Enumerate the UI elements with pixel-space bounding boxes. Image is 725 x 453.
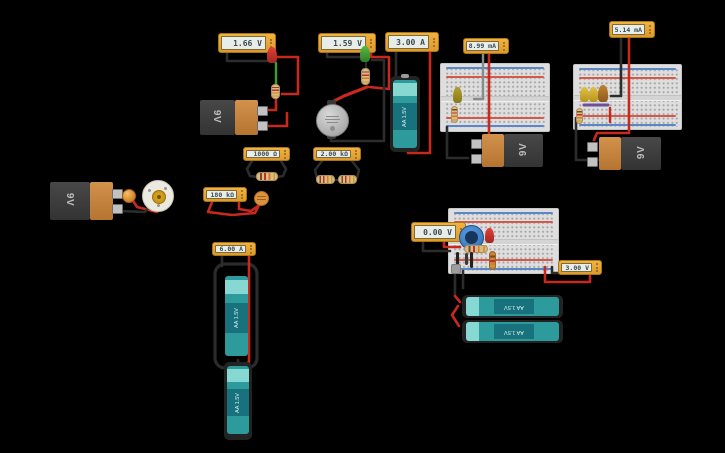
meter-display: 1.66 V <box>221 36 266 50</box>
green-led[interactable] <box>360 46 370 62</box>
battery-terminal[interactable] <box>112 204 123 214</box>
meter-reading: 1.66 V <box>233 39 262 48</box>
meter-display: 1000 Ω <box>246 150 280 158</box>
multimeter-current-1[interactable]: 3.00 A <box>385 32 439 52</box>
battery-aa-5[interactable]: AA 1.5V <box>462 320 563 343</box>
meter-display: 0.00 V <box>414 225 456 239</box>
multimeter-current-3[interactable]: 5.14 mA <box>609 21 655 38</box>
battery-terminal[interactable] <box>471 154 482 164</box>
jumper-pad[interactable] <box>451 264 461 274</box>
battery-aa-3[interactable]: AA 1.5V <box>224 362 252 440</box>
meter-reading: 1.59 V <box>333 39 362 48</box>
meter-mode-selector[interactable] <box>353 150 358 159</box>
battery-9v-4[interactable]: 9V <box>50 182 121 220</box>
resistor[interactable] <box>451 106 458 123</box>
circuit-canvas[interactable]: 1.66 V 1.59 V 3.00 A 8.99 mA 5.14 mA 100… <box>0 0 725 453</box>
meter-display: 180 kΩ <box>206 190 237 199</box>
red-led[interactable] <box>485 228 494 243</box>
motor-hub <box>152 190 166 204</box>
battery-terminal[interactable] <box>587 142 598 152</box>
battery-aa-4[interactable]: AA 1.5V <box>462 295 563 318</box>
meter-reading: 8.99 mA <box>469 42 496 50</box>
meter-reading: 6.00 A <box>220 245 243 253</box>
multimeter-voltage-4[interactable]: 3.00 V <box>558 260 602 275</box>
meter-display: 1.59 V <box>321 36 366 50</box>
wire-black[interactable] <box>327 53 361 57</box>
resistor[interactable] <box>576 108 583 124</box>
multimeter-resistance-2[interactable]: 2.00 kΩ <box>313 147 361 161</box>
resistor[interactable] <box>338 175 357 184</box>
meter-mode-selector[interactable] <box>501 42 506 51</box>
wire-black[interactable] <box>277 161 286 177</box>
battery-label: 9V <box>211 110 222 123</box>
wire-red[interactable] <box>444 242 460 247</box>
battery-terminal[interactable] <box>257 121 268 131</box>
dc-motor[interactable] <box>316 104 349 137</box>
battery-label: AA 1.5V <box>402 107 408 127</box>
meter-reading: 2.00 kΩ <box>321 150 348 158</box>
wire-black[interactable] <box>447 127 468 158</box>
wire-gray[interactable] <box>474 54 483 99</box>
multimeter-voltage-3[interactable]: 0.00 V <box>411 222 466 242</box>
meter-mode-selector[interactable] <box>248 245 253 254</box>
battery-terminal[interactable] <box>471 139 482 149</box>
multimeter-resistance-3[interactable]: 180 kΩ <box>203 187 247 202</box>
meter-display: 2.00 kΩ <box>316 150 351 158</box>
potentiometer-knob[interactable] <box>465 231 478 244</box>
meter-mode-selector[interactable] <box>594 263 599 272</box>
jumper-wire[interactable] <box>465 253 468 265</box>
meter-mode-selector[interactable] <box>239 190 244 199</box>
battery-label: AA 1.5V <box>235 393 241 413</box>
red-led[interactable] <box>267 47 277 63</box>
meter-reading: 3.00 V <box>566 264 589 272</box>
meter-display: 3.00 V <box>561 263 592 272</box>
battery-label: 9V <box>64 193 75 206</box>
amber-led[interactable] <box>598 85 608 102</box>
meter-mode-selector[interactable] <box>647 25 652 34</box>
meter-reading: 3.00 A <box>396 38 425 47</box>
battery-9v-1[interactable]: 9V <box>200 100 266 135</box>
vibration-motor[interactable] <box>142 180 174 212</box>
capacitor[interactable] <box>453 87 462 103</box>
wire-red[interactable] <box>332 87 367 102</box>
yellow-led[interactable] <box>580 87 589 102</box>
meter-reading: 0.00 V <box>423 228 452 237</box>
wire-red[interactable] <box>208 202 259 215</box>
wire-red[interactable] <box>452 306 459 326</box>
wire-black[interactable] <box>227 53 271 61</box>
meter-display: 8.99 mA <box>466 41 499 51</box>
meter-reading: 180 kΩ <box>211 191 234 199</box>
jumper-wire[interactable] <box>470 252 473 268</box>
battery-9v-2[interactable]: 9V <box>471 134 543 167</box>
resistor[interactable] <box>464 245 488 253</box>
multimeter-resistance-1[interactable]: 1000 Ω <box>243 147 290 161</box>
meter-mode-selector[interactable] <box>368 39 373 48</box>
wire-red[interactable] <box>369 53 389 89</box>
yellow-led[interactable] <box>589 87 598 102</box>
battery-aa-2[interactable]: AA 1.5V <box>225 276 248 356</box>
meter-display: 3.00 A <box>388 35 429 49</box>
light-bulb[interactable] <box>122 189 136 203</box>
battery-aa-1[interactable]: AA 1.5V <box>390 76 420 152</box>
battery-label: AA 1.5V <box>504 304 524 310</box>
resistor[interactable] <box>361 68 370 85</box>
battery-label: AA 1.5V <box>504 329 524 335</box>
resistor[interactable] <box>316 175 335 184</box>
battery-terminal[interactable] <box>257 106 268 116</box>
meter-display: 6.00 A <box>215 245 246 253</box>
resistor[interactable] <box>489 251 496 270</box>
meter-display: 5.14 mA <box>612 24 645 35</box>
battery-9v-3[interactable]: 9V <box>587 137 661 170</box>
wire-black[interactable] <box>611 38 621 96</box>
battery-terminal[interactable] <box>587 157 598 167</box>
meter-reading: 1000 Ω <box>254 150 277 158</box>
meter-reading: 5.14 mA <box>615 26 642 34</box>
battery-label: 9V <box>518 143 529 156</box>
multimeter-current-4[interactable]: 6.00 A <box>212 242 256 256</box>
battery-label: 9V <box>636 146 647 159</box>
meter-mode-selector[interactable] <box>282 150 287 159</box>
resistor[interactable] <box>256 172 278 181</box>
battery-terminal <box>401 74 409 78</box>
meter-mode-selector[interactable] <box>431 38 436 47</box>
battery-label: AA 1.5V <box>233 308 239 328</box>
multimeter-current-2[interactable]: 8.99 mA <box>463 38 509 54</box>
resistor[interactable] <box>271 84 280 99</box>
wire-red[interactable] <box>455 296 460 302</box>
photoresistor[interactable] <box>254 191 269 206</box>
motor-shaft <box>330 126 335 131</box>
